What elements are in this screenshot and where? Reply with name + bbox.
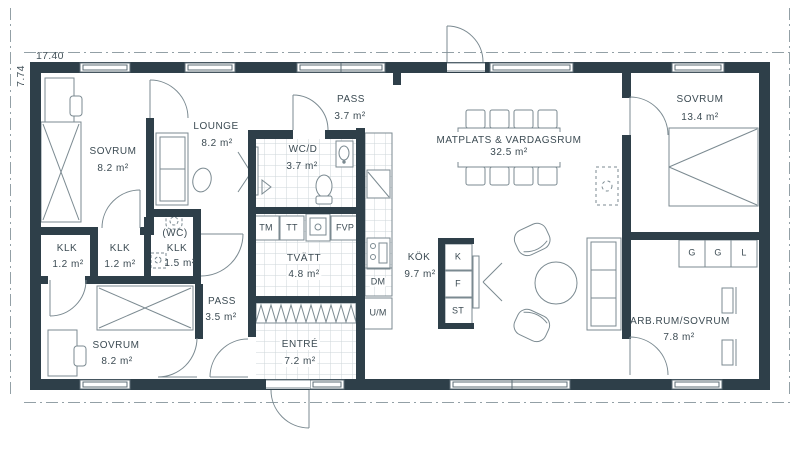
room-label-sovrum-nw: SOVRUM — [90, 147, 137, 157]
room-label-kok: KÖK — [408, 253, 431, 263]
closet-label-l: L — [741, 249, 746, 258]
entre-wardrobe-hatch — [256, 303, 356, 323]
appliance-label-tt: TT — [286, 224, 297, 233]
armchair-icon — [511, 306, 553, 345]
room-label-matplats-name: MATPLATS & VARDAGSRUM — [437, 136, 582, 146]
room-label-klk1: KLK — [57, 244, 77, 254]
appliance-label-um: U/M — [369, 309, 386, 318]
room-label-sovrum-ne: SOVRUM — [677, 95, 724, 105]
room-label-arbrum: ARB.RUM/SOVRUM — [630, 317, 730, 327]
room-label-wcd: WC/D — [289, 145, 318, 155]
room-label-matplats: MATPLATS & VARDAGSRUM 32.5 m² — [433, 132, 586, 162]
desk-sw — [48, 330, 86, 376]
armchair-icon — [511, 220, 553, 259]
room-area-pass-s: 3.5 m² — [205, 313, 236, 323]
walls — [30, 62, 770, 390]
room-label-pass-s: PASS — [208, 297, 236, 307]
room-area-klk2: 1.2 m² — [104, 260, 135, 270]
entry-sidelight — [310, 380, 344, 389]
room-area-tvatt: 4.8 m² — [286, 270, 321, 280]
room-label-wc-klk-1: (WC) — [162, 229, 187, 239]
appliance-label-tm: TM — [259, 224, 272, 233]
bed-sw — [97, 286, 193, 330]
sofa-lounge — [156, 133, 188, 205]
appliance-label-k: K — [455, 253, 461, 262]
room-label-entre: ENTRÉ — [280, 340, 320, 350]
room-area-kok: 9.7 m² — [404, 270, 435, 280]
closet-label-g2: G — [714, 249, 721, 258]
plant-icon — [190, 166, 214, 194]
washbasin-icon — [336, 141, 353, 167]
room-area-lounge: 8.2 m² — [201, 139, 232, 149]
room-area-entre: 7.2 m² — [282, 357, 317, 367]
sofa-livingroom — [587, 238, 621, 330]
room-area-sovrum-sw: 8.2 m² — [101, 357, 132, 367]
floor-plan-drawing — [0, 0, 800, 452]
room-area-pass-n: 3.7 m² — [334, 112, 365, 122]
appliance-label-f: F — [455, 280, 461, 289]
room-area-wc-klk: 1.5 m² — [164, 259, 195, 269]
toilet-icon — [316, 175, 332, 204]
room-label-lounge: LOUNGE — [193, 122, 238, 132]
bed-ne — [669, 128, 758, 206]
fireplace-dashed-icon — [596, 167, 618, 205]
room-label-sovrum-sw: SOVRUM — [93, 341, 140, 351]
room-area-matplats: 32.5 m² — [437, 148, 582, 158]
room-label-klk2: KLK — [110, 244, 130, 254]
bed-nw — [41, 122, 81, 222]
floor-plan: 17.40 7.74 SOVRUM 8.2 m² LOUNGE 8.2 m² P… — [0, 0, 800, 452]
room-label-tvatt: TVÄTT — [285, 254, 323, 264]
room-area-sovrum-nw: 8.2 m² — [97, 164, 128, 174]
room-label-wc-klk-2: KLK — [167, 244, 187, 254]
room-label-pass-n: PASS — [337, 95, 365, 105]
appliance-label-dm: DM — [370, 278, 386, 287]
closet-label-g1: G — [688, 249, 695, 258]
room-area-wcd: 3.7 m² — [286, 162, 317, 172]
room-area-klk1: 1.2 m² — [52, 260, 83, 270]
room-area-sovrum-ne: 13.4 m² — [681, 113, 718, 123]
appliance-label-st: ST — [452, 307, 464, 316]
dimension-width: 17.40 — [36, 50, 64, 62]
round-table — [535, 262, 577, 304]
appliance-label-fvp: FVP — [336, 224, 354, 233]
dimension-height: 7.74 — [15, 65, 27, 87]
room-area-arbrum: 7.8 m² — [663, 333, 694, 343]
